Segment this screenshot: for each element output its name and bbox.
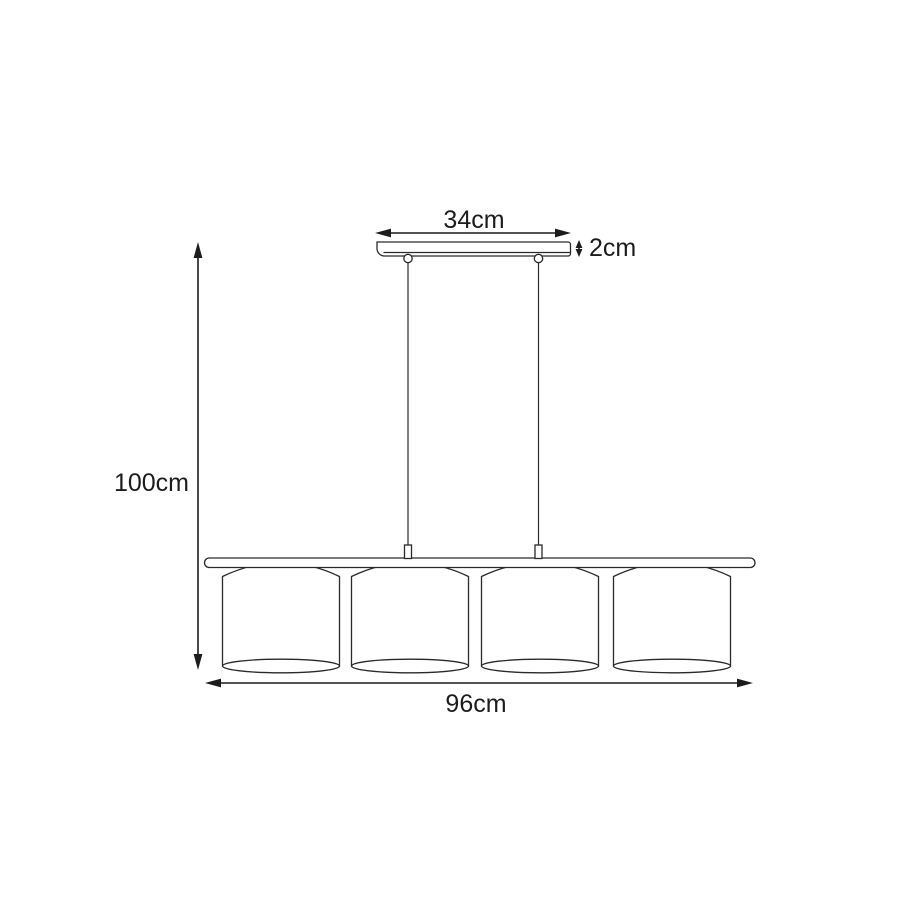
dimension-fixture-width: 96cm <box>205 679 753 718</box>
canopy-body <box>377 242 571 256</box>
diagram-canvas: 34cm 2cm 100cm 96cm <box>0 0 920 920</box>
arrowhead-right-icon <box>555 229 571 238</box>
lampshade-1 <box>223 563 340 673</box>
dimension-canopy-width: 34cm <box>375 206 571 237</box>
arrowhead-up-icon <box>576 240 583 248</box>
arrowhead-left-icon <box>375 229 391 238</box>
arrowhead-up-icon <box>194 242 203 258</box>
dimension-label-canopy-height: 2cm <box>589 234 636 262</box>
wire-stem-left <box>405 545 412 559</box>
dimension-label-fixture-width: 96cm <box>445 690 506 718</box>
ceiling-canopy <box>377 242 571 263</box>
arrowhead-down-icon <box>576 249 583 257</box>
suspension-group <box>405 263 543 559</box>
canopy-mount-right <box>534 254 542 262</box>
arrowhead-right-icon <box>737 679 753 688</box>
dimension-label-drop-height: 100cm <box>114 469 189 497</box>
dimension-canopy-height: 2cm <box>576 234 637 262</box>
lampshade-1-bottom-rim <box>223 659 340 673</box>
support-bar <box>205 558 756 568</box>
lampshades-group <box>223 563 731 673</box>
dimension-drop-height: 100cm <box>114 242 202 670</box>
canopy-mount-left <box>404 254 412 262</box>
lampshade-2-body <box>352 563 469 667</box>
lampshade-3 <box>482 563 599 673</box>
arrowhead-left-icon <box>205 679 221 688</box>
lampshade-2-bottom-rim <box>352 659 469 673</box>
lampshade-4 <box>614 563 731 673</box>
lampshade-3-bottom-rim <box>482 659 599 673</box>
pendant-lamp-dimension-diagram: 34cm 2cm 100cm 96cm <box>0 0 920 920</box>
lampshade-2 <box>352 563 469 673</box>
dimension-label-canopy-width: 34cm <box>443 206 504 234</box>
lampshade-3-body <box>482 563 599 667</box>
lampshade-4-bottom-rim <box>614 659 731 673</box>
arrowhead-down-icon <box>194 654 203 670</box>
lampshade-4-body <box>614 563 731 667</box>
lampshade-1-body <box>223 563 340 667</box>
wire-stem-right <box>535 545 542 559</box>
